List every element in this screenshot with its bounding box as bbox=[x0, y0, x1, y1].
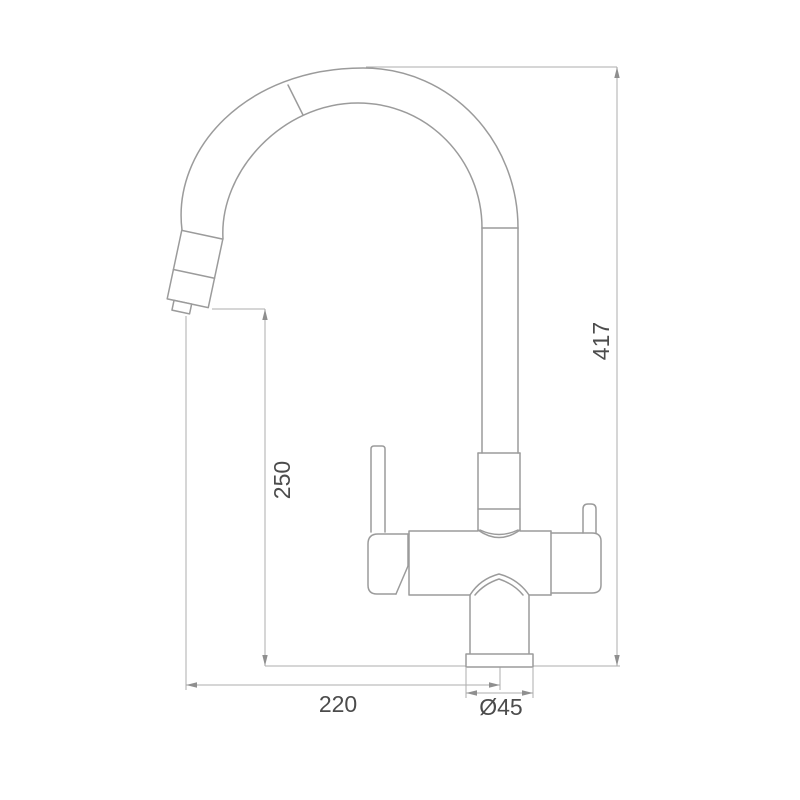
left-handle-stem bbox=[371, 446, 385, 532]
arrowhead-left bbox=[466, 690, 477, 695]
nozzle-body bbox=[167, 230, 223, 307]
riser-collar bbox=[478, 453, 520, 538]
dim-label-overall-height: 417 bbox=[588, 322, 614, 360]
left-lever-joint bbox=[396, 566, 408, 594]
dimension-spout-reach: 220 bbox=[186, 316, 500, 717]
faucet-body bbox=[409, 531, 551, 595]
faucet-technical-drawing: 417 250 220 Ø45 bbox=[0, 0, 800, 800]
arrowhead-up bbox=[262, 309, 267, 320]
base-flange bbox=[466, 654, 533, 667]
dim-label-base-diameter: Ø45 bbox=[479, 694, 522, 720]
dimension-outlet-height: 250 bbox=[212, 309, 295, 666]
right-handle bbox=[551, 504, 601, 593]
arrowhead-left bbox=[186, 682, 197, 687]
arrowhead-down bbox=[614, 655, 619, 666]
spout-outer-curve bbox=[181, 68, 518, 230]
right-handle-stem bbox=[583, 504, 596, 533]
left-valve-capsule bbox=[368, 534, 409, 594]
dim-label-spout-reach: 220 bbox=[319, 691, 357, 717]
base-joint bbox=[470, 574, 529, 595]
arrowhead-up bbox=[614, 67, 619, 78]
spout-seam bbox=[288, 85, 303, 115]
right-valve-body bbox=[551, 533, 601, 593]
nozzle bbox=[165, 230, 223, 317]
arrowhead-right bbox=[522, 690, 533, 695]
spout-inner-curve bbox=[223, 103, 482, 239]
dim-label-outlet-height: 250 bbox=[269, 461, 295, 499]
arrowhead-right bbox=[489, 682, 500, 687]
faucet-outline bbox=[165, 68, 601, 667]
arrowhead-down bbox=[262, 655, 267, 666]
drawing-svg: 417 250 220 Ø45 bbox=[0, 0, 800, 800]
left-handle bbox=[368, 446, 409, 594]
